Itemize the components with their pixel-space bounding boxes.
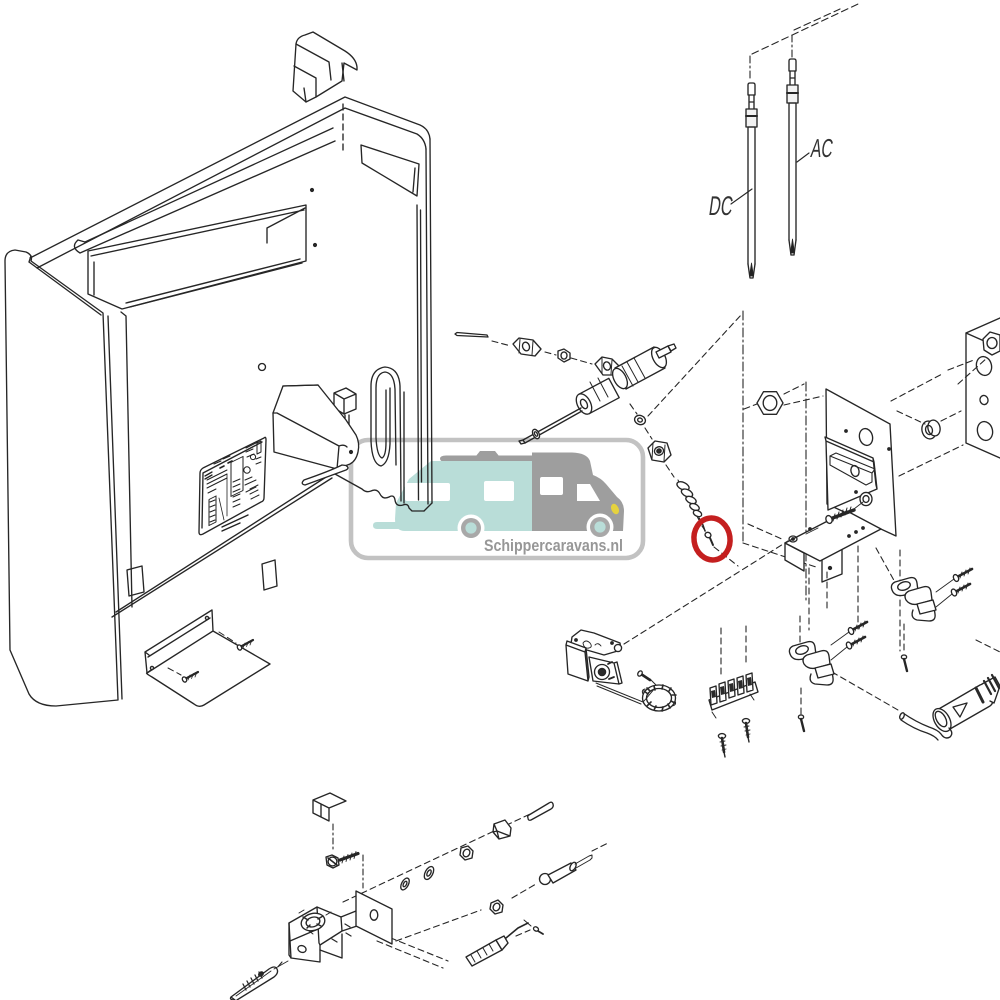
svg-text:Schippercaravans.nl: Schippercaravans.nl	[484, 536, 623, 555]
svg-text:DC: DC	[707, 191, 735, 221]
svg-text:AC: AC	[809, 133, 835, 163]
